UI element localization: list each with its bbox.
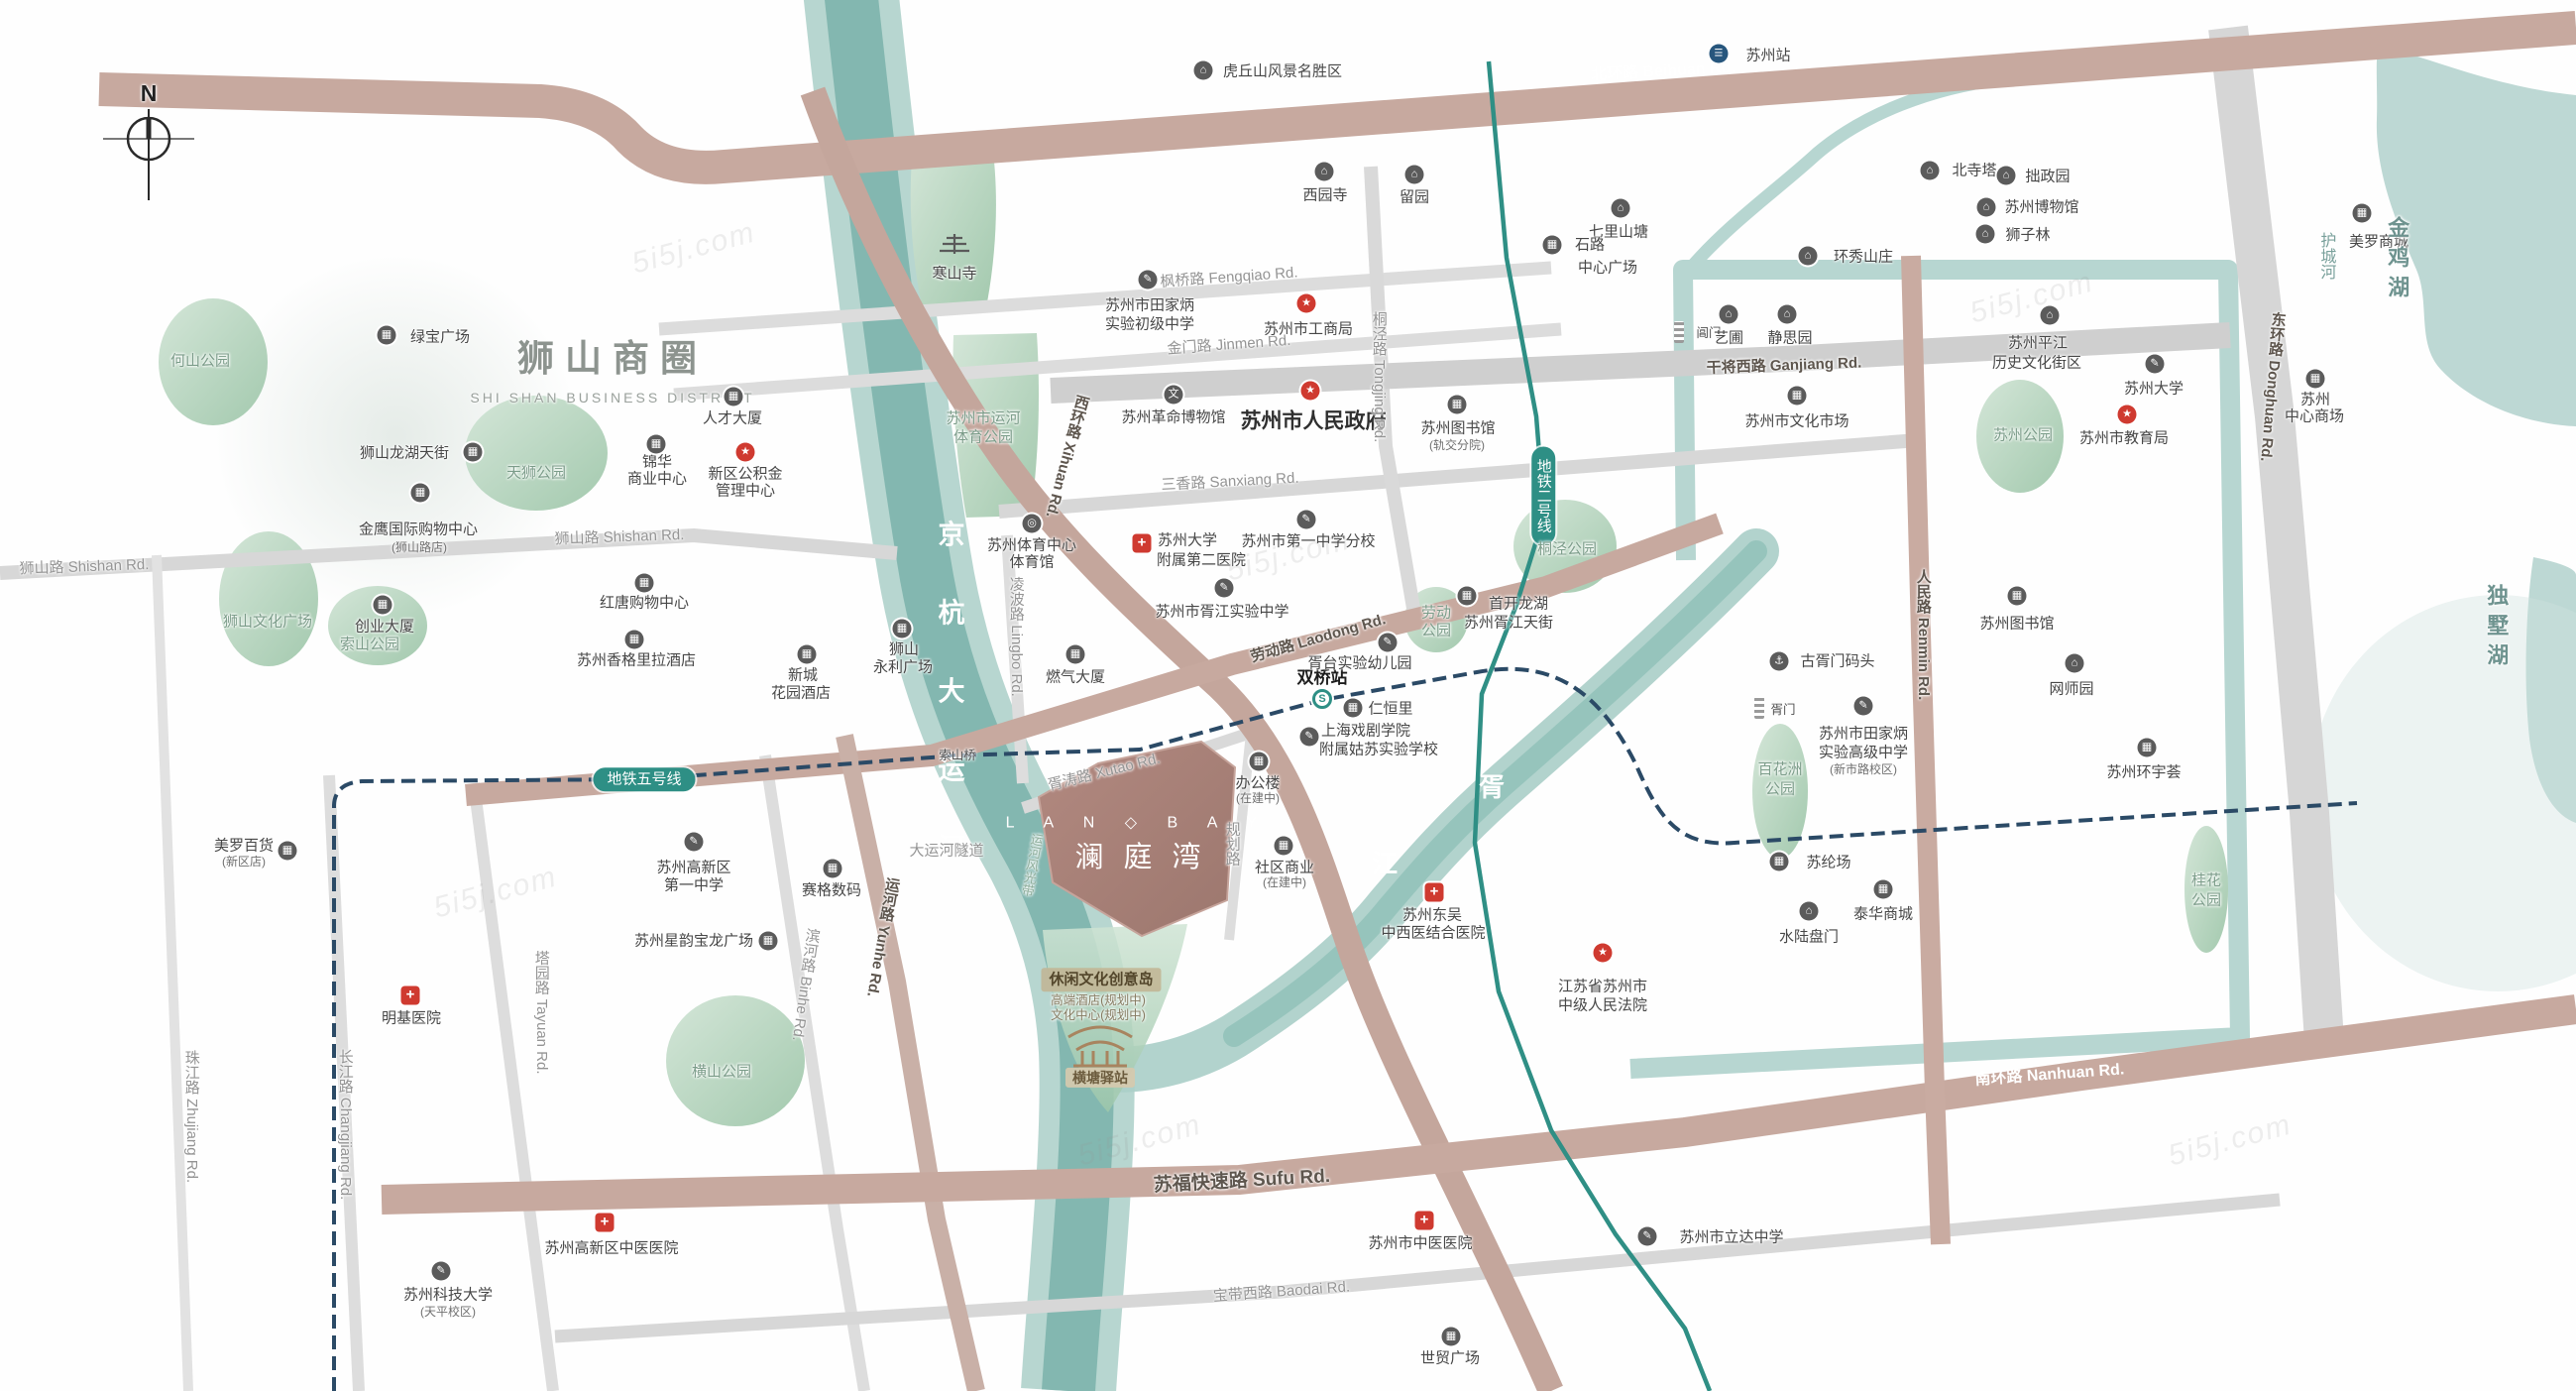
poi-yongli-plaza: 狮山 <box>889 639 919 659</box>
poi-changmen-gate-icon: ▤ <box>1674 321 1684 343</box>
poi-gaoxin-zhongyi-hospital-icon: + <box>596 1214 615 1232</box>
metro-station-shuangqiao-icon: S <box>1312 689 1332 709</box>
poi-wenhua-market: 苏州市文化市场 <box>1744 411 1848 431</box>
poi-xujiang-school-icon: ✎ <box>1215 579 1234 598</box>
water-hucheng-river: 护城河 <box>2315 232 2336 280</box>
poi-huanxiu-shanzhuang-icon: ⌂ <box>1799 247 1818 266</box>
poi-library-guijiao-icon: ▦ <box>1448 396 1467 414</box>
road-ganjiang-west: 干将西路 Ganjiang Rd. <box>1706 354 1861 379</box>
poi-sulunchang-icon: ▦ <box>1770 853 1789 871</box>
compass: N <box>141 79 158 109</box>
poi-zhongyi-hospital-icon: + <box>1415 1212 1434 1230</box>
poi-jinhua-center-icon: ▦ <box>647 435 666 454</box>
road-yunhe: 运河路 Yunhe Rd. <box>862 875 902 998</box>
poi-pingjiang-district-icon: ⌂ <box>2041 306 2060 325</box>
watermark-6: 5i5j.com <box>429 858 561 928</box>
park-suzhou: 苏州公园 <box>1993 425 2053 445</box>
poi-qili-shantang-icon: ⌂ <box>1612 199 1630 218</box>
watermark-4: 5i5j.com <box>1073 1105 1205 1176</box>
poi-liuyuan-garden-icon: ⌂ <box>1405 166 1424 184</box>
poi-jingsiyuan: 静思园 <box>1767 328 1812 348</box>
poi-dongwu-hospital: 苏州东吴 <box>1402 905 1462 925</box>
poi-shizilin: 狮子林 <box>2005 225 2050 245</box>
poi-keji-university: (天平校区) <box>420 1305 476 1321</box>
park-canal-scenic-belt: 运河风光带 <box>1017 832 1045 898</box>
park-suoshan: 索山公园 <box>340 635 399 654</box>
poi-beisita: 北寺塔 <box>1952 161 1996 180</box>
poi-intermediate-court-icon: ★ <box>1594 944 1613 963</box>
poi-xiyuan-temple: 西园寺 <box>1302 185 1347 205</box>
poi-tiyu-center: 体育馆 <box>1009 552 1054 572</box>
water-xu-char: 胥 <box>1479 771 1505 805</box>
poi-sulunchang: 苏纶场 <box>1806 853 1850 872</box>
metro-line5-badge: 地铁五号线 <box>593 767 695 791</box>
poi-rencai-tower-icon: ▦ <box>725 388 743 406</box>
road-sanxiang: 三香路 Sanxiang Rd. <box>1161 469 1299 496</box>
poi-suzhou-library-icon: ▦ <box>2008 587 2027 606</box>
poi-office-uc: 办公楼 <box>1235 773 1280 793</box>
park-guihua: 桂花 <box>2191 870 2221 890</box>
road-nanhuan: 南环路 Nanhuan Rd. <box>1974 1060 2125 1091</box>
poi-suzhou-museum: 苏州博物馆 <box>2004 197 2078 217</box>
road-xutao: 胥涛路 Xutao Rd. <box>1046 750 1162 796</box>
poi-wenhua-market-icon: ▦ <box>1788 387 1807 406</box>
poi-tianjiabing-senior-school: (新市路校区) <box>1830 762 1897 778</box>
road-lingbo: 凌波路 Lingbo Rd. <box>1006 576 1026 697</box>
poi-saige-digital-icon: ▦ <box>824 860 842 878</box>
poi-yipu-garden: 艺圃 <box>1714 328 1743 348</box>
road-renmin: 人民路 Renmin Rd. <box>1913 569 1933 701</box>
poi-longhu-tianjie-icon: ▦ <box>464 443 483 462</box>
poi-gaoxin-no1-school-icon: ✎ <box>685 833 704 852</box>
poi-gongshang-bureau-icon: ★ <box>1297 294 1316 313</box>
park-guihua: 公园 <box>2191 890 2221 910</box>
poi-renhengli: 仁恒里 <box>1368 699 1412 719</box>
poi-lida-school-icon: ✎ <box>1638 1227 1657 1246</box>
poi-shoukai-longhu: 首开龙湖 <box>1489 594 1548 614</box>
poi-xiyuan-temple-icon: ⌂ <box>1315 163 1334 181</box>
poi-suda-no2-hospital-icon: + <box>1133 534 1152 553</box>
park-laodong: 劳动 <box>1421 603 1451 623</box>
poi-wangshiyuan: 网师园 <box>2049 679 2093 699</box>
poi-keji-university-icon: ✎ <box>432 1262 451 1281</box>
road-shishan-2: 狮山路 Shishan Rd. <box>554 525 684 549</box>
poi-suzhou-university-icon: ✎ <box>2146 355 2165 374</box>
road-xihuan: 西环路 Xihuan Rd. <box>1041 393 1092 520</box>
poi-chuangye-tower-icon: ▦ <box>374 596 392 615</box>
poi-ranqi-tower: 燃气大厦 <box>1046 667 1105 687</box>
poi-shoukai-longhu: 苏州胥江天街 <box>1464 613 1553 633</box>
poi-keji-university: 苏州科技大学 <box>403 1285 493 1305</box>
poi-xingyun-baolong: 苏州星韵宝龙广场 <box>634 931 753 951</box>
poi-tianjiabing-junior-school: 苏州市田家炳 <box>1105 295 1194 315</box>
poi-suzhou-center-mall-icon: ▦ <box>2306 370 2325 389</box>
poi-xincheng-hotel: 新城 <box>788 665 818 685</box>
poi-huqiu-scenic-area: 虎丘山风景名胜区 <box>1223 61 1342 81</box>
road-zhujiang: 珠江路 Zhujiang Rd. <box>181 1050 201 1183</box>
poi-education-bureau: 苏州市教育局 <box>2079 428 2169 448</box>
poi-shilu-center-plaza-icon: ▦ <box>1543 236 1562 255</box>
poi-office-uc: (在建中) <box>1236 791 1280 807</box>
watermark-2: 5i5j.com <box>1222 521 1354 591</box>
poi-community-retail-uc-icon: ▦ <box>1275 837 1293 856</box>
poi-shilu-center-plaza: 石路 <box>1575 235 1605 255</box>
poi-xingyun-baolong-icon: ▦ <box>759 932 778 951</box>
poi-tianjiabing-junior-school-icon: ✎ <box>1139 271 1158 290</box>
map-labels-layer: N⌂虎丘山风景名胜区☰苏州站北环路 Beihuan Rd.寒山寺枫桥路 Feng… <box>0 0 2576 1391</box>
poi-shizilin-icon: ⌂ <box>1976 225 1995 244</box>
poi-tiyu-center-icon: ◎ <box>1023 515 1042 533</box>
road-binhe: 滨河路 Binhe Rd. <box>787 927 822 1043</box>
poi-shimao-plaza-icon: ▦ <box>1442 1328 1461 1346</box>
poi-xumen-gate-icon: ▤ <box>1754 697 1764 719</box>
poi-meiluo-dept-store: (新区店) <box>222 855 266 870</box>
water-dushu-lake: 独墅湖 <box>2482 584 2511 673</box>
poi-taihua-mall-icon: ▦ <box>1874 880 1893 899</box>
poi-gongjijin-center-icon: ★ <box>736 443 755 462</box>
poi-xujiang-school: 苏州市胥江实验中学 <box>1155 602 1288 622</box>
island-tag: 休闲文化创意岛 <box>1041 968 1161 991</box>
poi-guxumen-wharf: 古胥门码头 <box>1800 651 1874 671</box>
poi-library-guijiao: 苏州图书馆 <box>1420 418 1495 438</box>
poi-yongli-plaza-icon: ▦ <box>893 620 912 638</box>
poi-dongwu-hospital-icon: + <box>1425 883 1444 902</box>
poi-suzhou-museum-icon: ⌂ <box>1977 198 1996 217</box>
poi-huanyuhui-icon: ▦ <box>2138 739 2157 757</box>
poi-shangrila-hotel-icon: ▦ <box>625 631 644 649</box>
poi-liuyuan-garden: 留园 <box>1400 187 1429 207</box>
poi-longhu-tianjie: 狮山龙湖天街 <box>360 443 449 463</box>
poi-beisita-icon: ⌂ <box>1921 162 1940 180</box>
poi-office-uc-icon: ▦ <box>1250 753 1269 771</box>
poi-ranqi-tower-icon: ▦ <box>1066 645 1085 664</box>
district-shishan: SHI SHAN BUSINESS DISTRICT <box>470 389 754 406</box>
poi-pingjiang-district: 苏州平江 <box>2008 333 2068 353</box>
watermark-1: 5i5j.com <box>627 213 759 284</box>
metro-line2-badge: 地铁二号线 <box>1531 447 1555 545</box>
poi-huanyuhui: 苏州环宇荟 <box>2106 762 2181 782</box>
poi-gaoxin-no1-school: 第一中学 <box>664 875 724 895</box>
poi-jinying-shopping: (狮山路店) <box>392 540 447 556</box>
poi-suzhou-government-icon: ★ <box>1301 382 1320 401</box>
poi-panmen: 水陆盘门 <box>1779 927 1839 947</box>
poi-zhuozhengyuan-icon: ⌂ <box>1997 167 2016 185</box>
road-changjiang: 长江路 Changjiang Rd. <box>335 1049 355 1201</box>
park-tianshi: 天狮公园 <box>506 463 566 483</box>
poi-shilu-center-plaza: 中心广场 <box>1578 258 1637 278</box>
poi-tianjiabing-junior-school: 实验初级中学 <box>1105 314 1194 334</box>
poi-intermediate-court: 江苏省苏州市 <box>1558 977 1647 996</box>
poi-meiluo-dept-store: 美罗百货 <box>214 836 274 856</box>
poi-xincheng-hotel: 花园酒店 <box>771 683 831 703</box>
poi-dongwu-hospital: 中西医结合医院 <box>1381 923 1485 943</box>
project-lanbay: 澜庭湾 <box>1074 840 1220 877</box>
poi-suzhou-railway-station-icon: ☰ <box>1710 45 1729 63</box>
poi-xincheng-hotel-icon: ▦ <box>798 645 817 664</box>
road-tongjing: 桐泾路 Tongjing Rd. <box>1369 311 1389 443</box>
park-heshan: 何山公园 <box>170 351 230 371</box>
poi-zhuozhengyuan: 拙政园 <box>2025 167 2070 186</box>
road-fengqiao: 枫桥路 Fengqiao Rd. <box>1160 263 1298 291</box>
poi-renhengli-icon: ▦ <box>1344 699 1363 718</box>
road-donghuan: 东环路 Donghuan Rd. <box>2256 311 2289 463</box>
poi-suda-no2-hospital: 苏州大学 <box>1158 530 1217 550</box>
poi-community-retail-uc: 社区商业 <box>1255 858 1314 877</box>
poi-meiluo-mall-icon: ▦ <box>2353 204 2372 223</box>
poi-suzhou-center-mall: 中心商场 <box>2285 406 2344 426</box>
poi-shanghai-theatre-school: 上海戏剧学院 <box>1321 721 1410 741</box>
poi-hongtang-mall: 红唐购物中心 <box>600 593 689 613</box>
poi-jinhua-center: 商业中心 <box>627 469 687 489</box>
poi-gaoxin-no1-school: 苏州高新区 <box>656 858 730 877</box>
road-shishan-1: 狮山路 Shishan Rd. <box>19 555 149 579</box>
road-sufu: 苏福快速路 Sufu Rd. <box>1153 1165 1330 1199</box>
park-yunhe-sports: 苏州市运河 <box>946 408 1020 428</box>
road-tayuan: 塔园路 Tayuan Rd. <box>531 950 551 1074</box>
poi-huqiu-scenic-area-icon: ⌂ <box>1194 61 1213 80</box>
poi-jinying-shopping: 金鹰国际购物中心 <box>359 520 478 539</box>
poi-shanghai-theatre-school-icon: ✎ <box>1300 728 1319 747</box>
poi-shangrila-hotel: 苏州香格里拉酒店 <box>577 650 696 670</box>
park-hengshan: 横山公园 <box>692 1062 751 1082</box>
poi-library-guijiao: (轨交分院) <box>1429 438 1485 454</box>
poi-tianjiabing-senior-school-icon: ✎ <box>1854 697 1873 716</box>
poi-geming-museum-icon: 文 <box>1165 386 1183 405</box>
park-yunhe-sports: 体育公园 <box>953 427 1013 447</box>
poi-community-retail-uc: (在建中) <box>1263 875 1306 891</box>
poi-saige-digital: 赛格数码 <box>802 880 861 900</box>
poi-shimao-plaza: 世贸广场 <box>1420 1348 1480 1368</box>
poi-lida-school: 苏州市立达中学 <box>1679 1227 1783 1247</box>
poi-intermediate-court: 中级人民法院 <box>1558 995 1647 1015</box>
poi-taihua-mall: 泰华商城 <box>1853 904 1913 924</box>
poi-canal-tunnel: 大运河隧道 <box>909 841 983 861</box>
poi-gaoxin-zhongyi-hospital: 苏州高新区中医医院 <box>544 1238 678 1258</box>
road-beihuan: 北环路 Beihuan Rd. <box>1591 58 1736 86</box>
poi-guxumen-wharf-icon: ⚓ <box>1770 652 1789 671</box>
poi-shanghai-theatre-school: 附属姑苏实验学校 <box>1319 740 1438 759</box>
poi-no1-branch-school-icon: ✎ <box>1297 511 1316 529</box>
poi-suzhou-university: 苏州大学 <box>2124 379 2184 399</box>
park-baihuazhou: 公园 <box>1765 779 1795 799</box>
poi-jingsiyuan-icon: ⌂ <box>1778 305 1797 324</box>
poi-tianjiabing-senior-school: 苏州市田家炳 <box>1819 724 1908 744</box>
water-jiang-char: 江 <box>1372 848 1398 881</box>
park-shishan-wenhua: 狮山文化广场 <box>223 612 312 632</box>
poi-zhongyi-hospital: 苏州市中医医院 <box>1368 1233 1472 1253</box>
watermark-5: 5i5j.com <box>2164 1105 2296 1176</box>
park-baihuazhou: 百花洲 <box>1757 759 1802 779</box>
poi-chuangye-tower: 创业大厦 <box>355 617 414 637</box>
poi-lvbao-plaza-icon: ▦ <box>378 326 396 345</box>
map-canvas: N⌂虎丘山风景名胜区☰苏州站北环路 Beihuan Rd.寒山寺枫桥路 Feng… <box>0 0 2576 1391</box>
district-shishan: 狮山商圈 <box>517 335 708 383</box>
poi-suzhou-railway-station: 苏州站 <box>1745 46 1790 65</box>
poi-xutai-kindergarten: 胥台实验幼儿园 <box>1307 653 1411 673</box>
poi-panmen-icon: ⌂ <box>1800 902 1819 921</box>
water-jinji-lake: 金鸡湖 <box>2383 216 2411 305</box>
poi-hongtang-mall-icon: ▦ <box>635 574 654 593</box>
road-baodai: 宝带西路 Baodai Rd. <box>1212 1277 1350 1306</box>
poi-hanshan-temple: 寒山寺 <box>932 264 976 284</box>
poi-suzhou-library: 苏州图书馆 <box>1979 614 2054 634</box>
poi-mingji-hospital-icon: + <box>401 986 420 1005</box>
poi-tianjiabing-senior-school: 实验高级中学 <box>1819 743 1908 762</box>
poi-gongshang-bureau: 苏州市工商局 <box>1264 319 1353 339</box>
poi-mingji-hospital: 明基医院 <box>382 1008 441 1028</box>
poi-hengtang-yizhan: 横塘驿站 <box>1065 1068 1135 1088</box>
island-hotel-planned: 高端酒店(规划中) <box>1051 992 1146 1008</box>
poi-suzhou-government: 苏州市人民政府 <box>1241 407 1387 434</box>
island-culture-planned: 文化中心(规划中) <box>1051 1007 1146 1023</box>
poi-xutai-kindergarten-icon: ✎ <box>1379 634 1398 652</box>
poi-jinying-shopping-icon: ▦ <box>411 484 430 503</box>
poi-pingjiang-district: 历史文化街区 <box>1992 353 2081 373</box>
poi-xumen-gate: 胥门 <box>1770 702 1795 718</box>
poi-wangshiyuan-icon: ⌂ <box>2066 654 2084 673</box>
project-lanbay: L A N ◇ B A Y <box>1006 814 1271 835</box>
poi-meiluo-dept-store-icon: ▦ <box>279 842 297 861</box>
poi-lvbao-plaza: 绿宝广场 <box>410 327 470 347</box>
poi-yipu-garden-icon: ⌂ <box>1720 305 1738 324</box>
park-tongjing: 桐泾公园 <box>1537 539 1597 559</box>
poi-suoshan-bridge: 索山桥 <box>939 748 976 763</box>
poi-gongjijin-center: 管理中心 <box>716 481 775 501</box>
poi-rencai-tower: 人才大厦 <box>703 408 762 428</box>
watermark-3: 5i5j.com <box>1965 263 2097 333</box>
poi-huanxiu-shanzhuang: 环秀山庄 <box>1834 247 1893 267</box>
poi-yongli-plaza: 永利广场 <box>873 657 933 677</box>
park-laodong: 公园 <box>1421 621 1451 640</box>
poi-education-bureau-icon: ★ <box>2118 406 2137 424</box>
poi-shoukai-longhu-icon: ▦ <box>1458 587 1477 606</box>
poi-geming-museum: 苏州革命博物馆 <box>1121 407 1225 427</box>
